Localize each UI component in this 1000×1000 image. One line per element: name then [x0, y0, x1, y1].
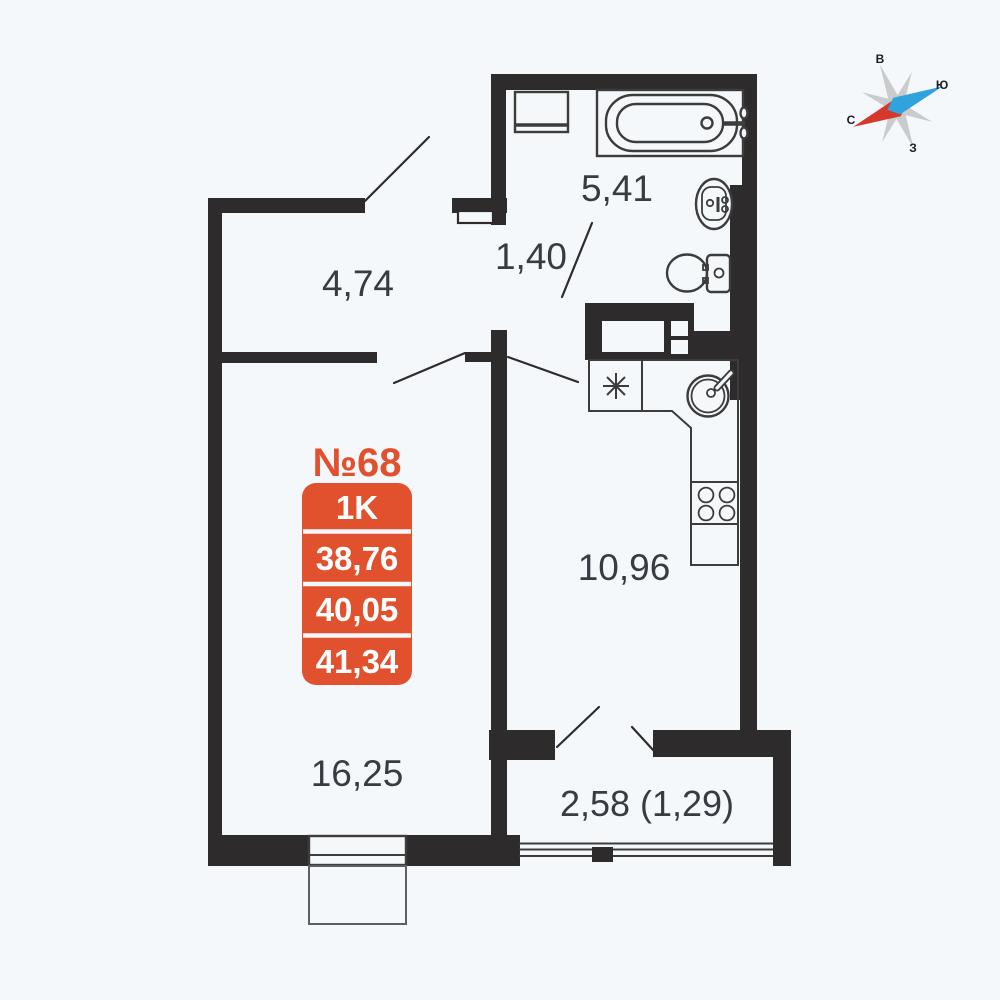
apartment-badge[interactable]: 1K 38,76 40,05 41,34 — [302, 483, 412, 685]
compass-letter-top: В — [876, 52, 885, 66]
wall — [208, 198, 365, 213]
wall — [489, 730, 555, 760]
duct-opening — [671, 321, 688, 336]
room-area-bathroom: 5,41 — [581, 168, 653, 209]
badge-row-area3: 41,34 — [316, 643, 399, 680]
door-threshold — [458, 211, 493, 223]
compass-rose-icon: В Ю С З — [835, 46, 960, 166]
room-area-kitchen: 10,96 — [578, 547, 671, 588]
compass-letter-bottom: З — [909, 141, 917, 155]
wall — [773, 730, 791, 866]
room-area-living-room: 16,25 — [311, 753, 404, 794]
window-sill — [309, 866, 406, 924]
floor-patch — [694, 303, 730, 331]
room-area-corridor: 1,40 — [495, 236, 567, 277]
window — [309, 836, 406, 924]
compass-letter-right: Ю — [936, 78, 948, 92]
wall — [740, 400, 757, 757]
stove-icon — [691, 482, 738, 524]
bathroom-sink-icon — [696, 179, 732, 229]
glazing-post — [592, 847, 613, 862]
kitchen-sink-icon — [688, 373, 732, 417]
room-area-balcony: 2,58 (1,29) — [560, 783, 734, 824]
balcony-door-line — [557, 707, 599, 747]
floor-plan-svg: 4,74 5,41 1,40 10,96 16,25 2,58 (1,29) №… — [0, 0, 1000, 1000]
balcony-door-line — [632, 727, 654, 751]
wall — [465, 352, 493, 362]
entrance-door-line — [365, 137, 429, 201]
washing-machine-icon — [515, 92, 568, 132]
toilet-icon — [667, 255, 730, 293]
balcony-glazing — [519, 844, 773, 863]
apartment-number: №68 — [312, 441, 401, 485]
wall — [491, 74, 757, 90]
wall — [208, 198, 222, 866]
room-area-hallway: 4,74 — [322, 263, 394, 304]
duct-opening — [671, 340, 688, 354]
wall — [222, 352, 377, 363]
window-frame — [309, 836, 406, 865]
wall — [730, 185, 757, 400]
badge-row-area2: 40,05 — [316, 591, 399, 628]
wall — [491, 330, 507, 866]
room-door-line — [394, 353, 465, 383]
badge-row-type: 1K — [336, 489, 378, 526]
wall — [491, 74, 506, 225]
kitchen-door-line — [508, 357, 578, 382]
compass-letter-left: С — [847, 113, 856, 127]
floor-plan: 4,74 5,41 1,40 10,96 16,25 2,58 (1,29) №… — [0, 0, 1000, 1000]
fridge-asterisk-icon — [603, 373, 629, 399]
badge-row-area1: 38,76 — [316, 540, 399, 577]
wall — [653, 730, 790, 757]
duct-opening — [602, 321, 664, 352]
bathtub-icon — [597, 90, 748, 156]
